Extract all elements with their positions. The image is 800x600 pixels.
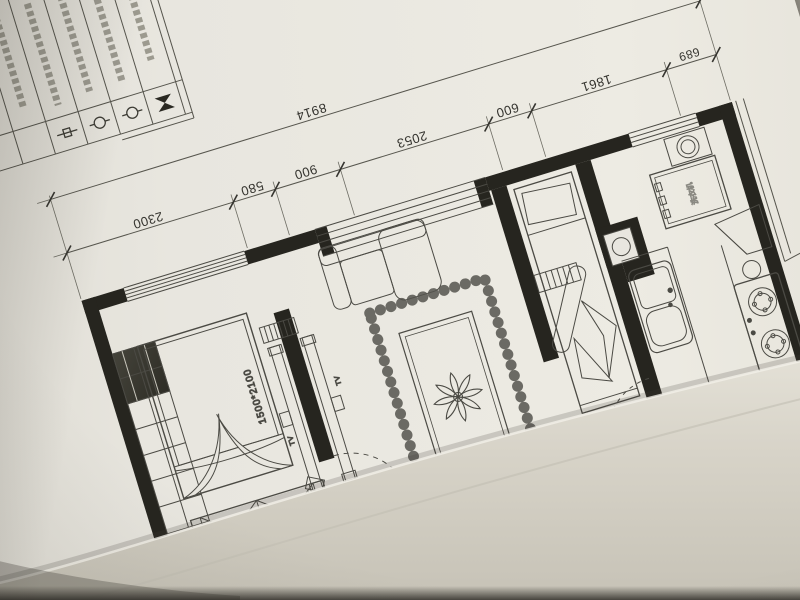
floor-plan-drawing: 8914 2300 580 900 2053 600 1861 689: [0, 0, 800, 600]
tv-label-bedroom: TV: [287, 435, 297, 447]
rug: [370, 278, 540, 493]
dim-2300: 2300: [131, 209, 165, 232]
dim-580: 580: [239, 178, 266, 199]
plant-icon: [427, 366, 489, 428]
dim-2053: 2053: [395, 128, 429, 151]
washing-machine: 洗衣机: [650, 155, 731, 228]
legend-grid: [0, 0, 194, 190]
hall-x-cabinet: [378, 490, 456, 600]
dash-symbol: [56, 126, 78, 140]
bedroom-door-arc: [334, 438, 411, 515]
hob-single: [664, 127, 712, 166]
bedroom-window: [124, 251, 249, 301]
washing-machine-label: 洗衣机: [684, 181, 700, 206]
paper-sheet: 8914 2300 580 900 2053 600 1861 689: [0, 0, 800, 600]
dim-900: 900: [292, 162, 319, 183]
balcony-window: [315, 177, 493, 256]
dim-overall: 8914: [294, 100, 328, 123]
tv-label-living: TV: [334, 374, 344, 386]
legend-table: [0, 0, 194, 190]
dim-689: 689: [677, 45, 702, 65]
solid-bowtie-symbol: [155, 94, 175, 112]
dim-600: 600: [494, 100, 521, 121]
circle-inline-symbol: [121, 104, 144, 121]
desk: [584, 402, 655, 464]
photo-of-floor-plan: 8914 2300 580 900 2053 600 1861 689: [0, 0, 800, 600]
circle-inline-symbol: [88, 114, 111, 131]
dim-1861: 1861: [579, 72, 613, 95]
living-room: [317, 178, 628, 502]
